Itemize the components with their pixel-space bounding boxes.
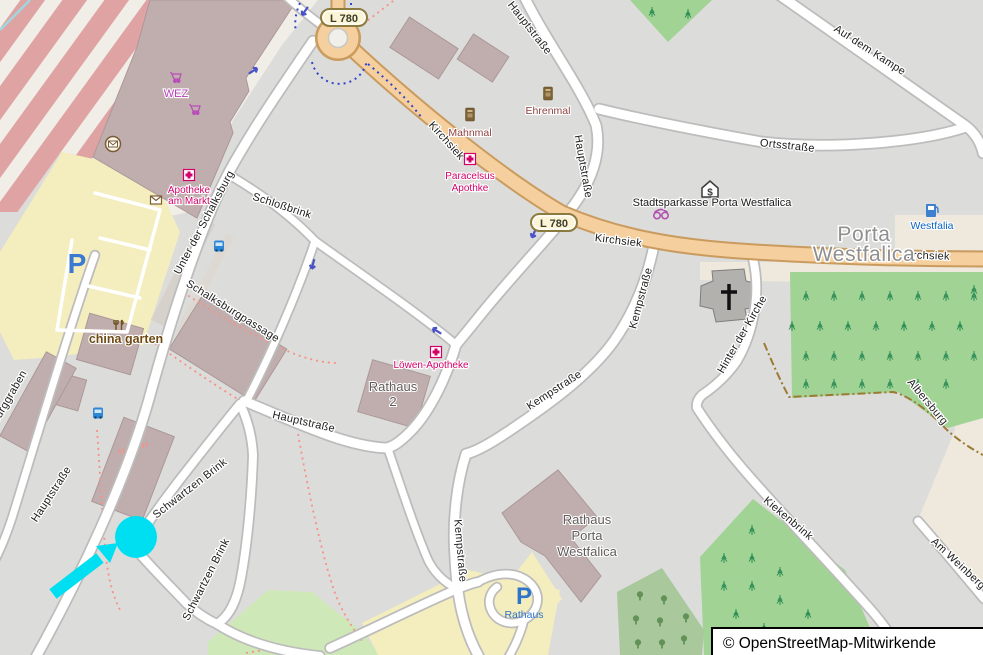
rathaus-pw-label: Westfalica bbox=[557, 544, 617, 559]
pharmacy-icon bbox=[465, 154, 476, 165]
rathaus2-label: Rathaus bbox=[369, 379, 418, 394]
city-label: Westfalica bbox=[813, 243, 915, 266]
map-viewport[interactable]: L 780 L 780 Hauptstraße Hauptstraße Kirc… bbox=[0, 0, 983, 655]
mahnmal-label: Mahnmal bbox=[448, 127, 491, 139]
rathaus2-label: 2 bbox=[389, 394, 396, 409]
memorial-icon bbox=[544, 87, 553, 100]
china-garten-label: china garten bbox=[89, 332, 163, 346]
paracelsus-label: Paracelsus bbox=[445, 171, 494, 182]
rathaus-pw-label: Porta bbox=[571, 528, 603, 543]
target-marker bbox=[115, 516, 157, 558]
badge-label: L 780 bbox=[540, 218, 568, 230]
parking-symbol: P bbox=[516, 583, 532, 610]
loewen-apotheke-label: Löwen-Apotheke bbox=[393, 360, 468, 371]
route-badge-l780-mid: L 780 bbox=[531, 214, 577, 231]
route-badge-l780-north: L 780 bbox=[321, 9, 367, 26]
apotheke-markt-label: am Markt bbox=[168, 196, 210, 207]
parking-rathaus-label: Rathaus bbox=[504, 609, 543, 621]
badge-label: L 780 bbox=[330, 13, 358, 25]
attribution-box[interactable]: © OpenStreetMap-Mitwirkende bbox=[712, 628, 983, 655]
memorial-icon bbox=[466, 108, 475, 121]
pharmacy-icon bbox=[184, 170, 195, 181]
rathaus-pw-label: Rathaus bbox=[563, 512, 612, 527]
bus-stop-icon bbox=[214, 241, 224, 252]
pharmacy-icon bbox=[431, 347, 442, 358]
ehrenmal-label: Ehrenmal bbox=[526, 105, 571, 117]
attribution-text[interactable]: © OpenStreetMap-Mitwirkende bbox=[723, 635, 936, 652]
westfalia-label: Westfalia bbox=[911, 220, 954, 232]
apotheke-markt-label: Apotheke bbox=[168, 185, 211, 196]
wez-label: WEZ bbox=[164, 88, 189, 100]
bus-stop-icon bbox=[93, 408, 103, 419]
paracelsus-label: Apothke bbox=[452, 183, 489, 194]
stadtsparkasse-label: Stadtsparkasse Porta Westfalica bbox=[633, 197, 793, 209]
parking-symbol: P bbox=[68, 248, 87, 279]
osm-map[interactable]: L 780 L 780 Hauptstraße Hauptstraße Kirc… bbox=[0, 0, 983, 655]
post-office-icon bbox=[106, 137, 121, 152]
mailbox-icon bbox=[151, 196, 162, 204]
